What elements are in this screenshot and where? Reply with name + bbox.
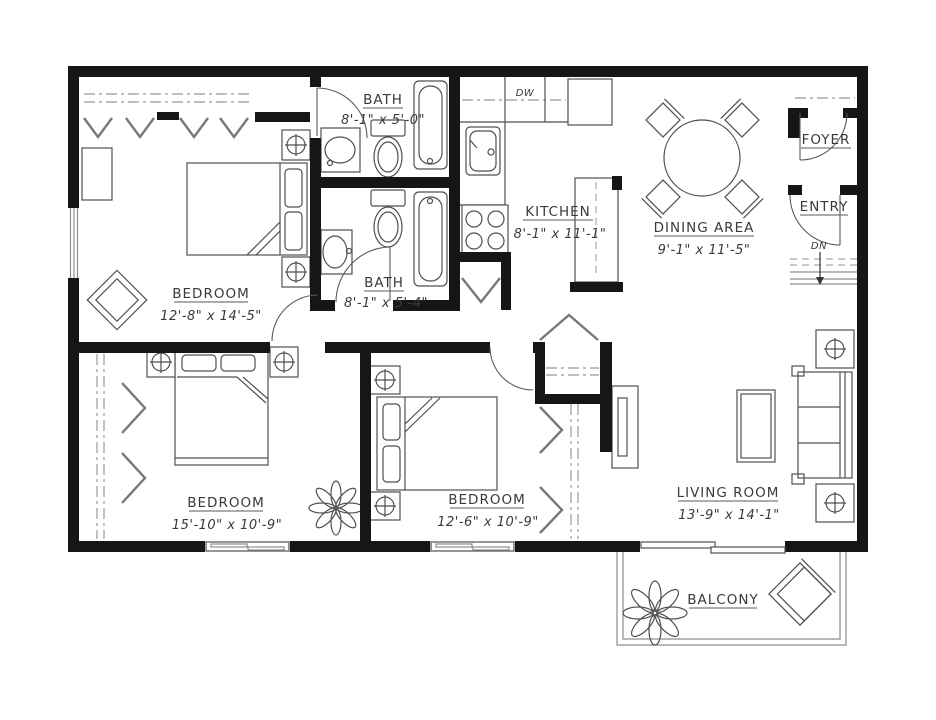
kitchen-sink: [466, 127, 500, 175]
closet-bifold-door: [462, 278, 500, 302]
dining-table: [664, 120, 740, 196]
balcony-chair: [767, 559, 835, 627]
end-table: [816, 330, 854, 368]
closet-bifold-door: [122, 383, 145, 503]
window: [431, 542, 514, 551]
dining-name: DINING AREA: [654, 220, 755, 236]
tv-cabinet: [612, 386, 638, 468]
kitchen-name: KITCHEN: [525, 204, 591, 220]
bath1-name: BATH: [363, 92, 403, 108]
room-label-entry: ENTRY: [800, 199, 849, 215]
bedroom1-name: BEDROOM: [172, 286, 249, 302]
closet-shelf-lines-bedroom1: [84, 94, 252, 102]
closet-shelf-lines-bedroom3: [571, 404, 578, 539]
nightstand: [282, 130, 310, 160]
entry-name: ENTRY: [800, 199, 849, 215]
refrigerator: [568, 79, 612, 125]
living-dims: 13'-9" x 14'-1": [678, 508, 780, 523]
closet-bifold-door: [540, 315, 598, 340]
bed: [377, 397, 497, 490]
bath1-dims: 8'-1" x 5'-0": [341, 113, 425, 128]
stairs-down-label: DN: [811, 241, 827, 252]
closet-bifold-door: [540, 407, 562, 533]
room-label-bath2: BATH 8'-1" x 5'-4": [344, 275, 428, 311]
nightstand: [370, 366, 400, 394]
dining-chair: [645, 99, 685, 139]
room-label-living: LIVING ROOM 13'-9" x 14'-1": [677, 485, 780, 523]
bedroom2-name: BEDROOM: [187, 495, 264, 511]
stairs: [790, 252, 857, 285]
kitchen-dims: 8'-1" x 11'-1": [514, 227, 607, 242]
accent-chair: [87, 270, 146, 329]
bedroom2-dims: 15'-10" x 10'-9": [172, 518, 282, 533]
room-label-bedroom3: BEDROOM 12'-6" x 10'-9": [437, 492, 539, 530]
bathroom-sink: [321, 230, 352, 274]
room-label-bath1: BATH 8'-1" x 5'-0": [341, 92, 425, 128]
bed: [187, 163, 307, 255]
closet-bifold-door: [84, 118, 248, 137]
nightstand: [282, 257, 310, 287]
toilet: [371, 120, 405, 177]
living-name: LIVING ROOM: [677, 485, 780, 501]
nightstand: [270, 347, 298, 377]
bath2-dims: 8'-1" x 5'-4": [344, 296, 428, 311]
toilet: [371, 190, 405, 247]
dining-chair: [721, 99, 761, 139]
bed: [175, 348, 268, 465]
plant: [309, 481, 363, 535]
bedroom1-dims: 12'-8" x 14'-5": [160, 309, 262, 324]
floor-plan-drawing: BATH 8'-1" x 5'-0" BATH 8'-1" x 5'-4" KI…: [0, 0, 936, 720]
dining-dims: 9'-1" x 11'-5": [658, 243, 751, 258]
sliding-door: [641, 542, 785, 553]
room-label-bedroom1: BEDROOM 12'-8" x 14'-5": [160, 286, 262, 324]
door-swing: [490, 347, 533, 390]
stove: [462, 205, 508, 253]
window: [206, 542, 289, 551]
bathroom-sink: [321, 128, 360, 172]
bath2-name: BATH: [364, 275, 404, 291]
floor-plan-canvas: BATH 8'-1" x 5'-0" BATH 8'-1" x 5'-4" KI…: [0, 0, 936, 720]
end-table: [816, 484, 854, 522]
dresser: [82, 148, 112, 200]
balcony-name: BALCONY: [687, 592, 758, 608]
bedroom3-name: BEDROOM: [448, 492, 525, 508]
coffee-table: [737, 390, 775, 462]
foyer-name: FOYER: [802, 132, 851, 148]
plant: [623, 581, 687, 645]
dishwasher-label: DW: [516, 88, 535, 99]
nightstand: [370, 492, 400, 520]
bedroom3-dims: 12'-6" x 10'-9": [437, 515, 539, 530]
room-label-kitchen: KITCHEN 8'-1" x 11'-1": [514, 204, 607, 242]
sofa: [792, 366, 852, 484]
room-label-foyer: FOYER: [801, 132, 851, 148]
room-label-balcony: BALCONY: [687, 592, 758, 608]
room-label-bedroom2: BEDROOM 15'-10" x 10'-9": [172, 495, 282, 533]
room-label-dining: DINING AREA 9'-1" x 11'-5": [654, 220, 755, 258]
closet-shelf-lines-hall: [546, 368, 599, 375]
closet-shelf-lines-bedroom2: [97, 354, 104, 539]
bathtub: [414, 192, 447, 286]
window: [71, 208, 78, 278]
